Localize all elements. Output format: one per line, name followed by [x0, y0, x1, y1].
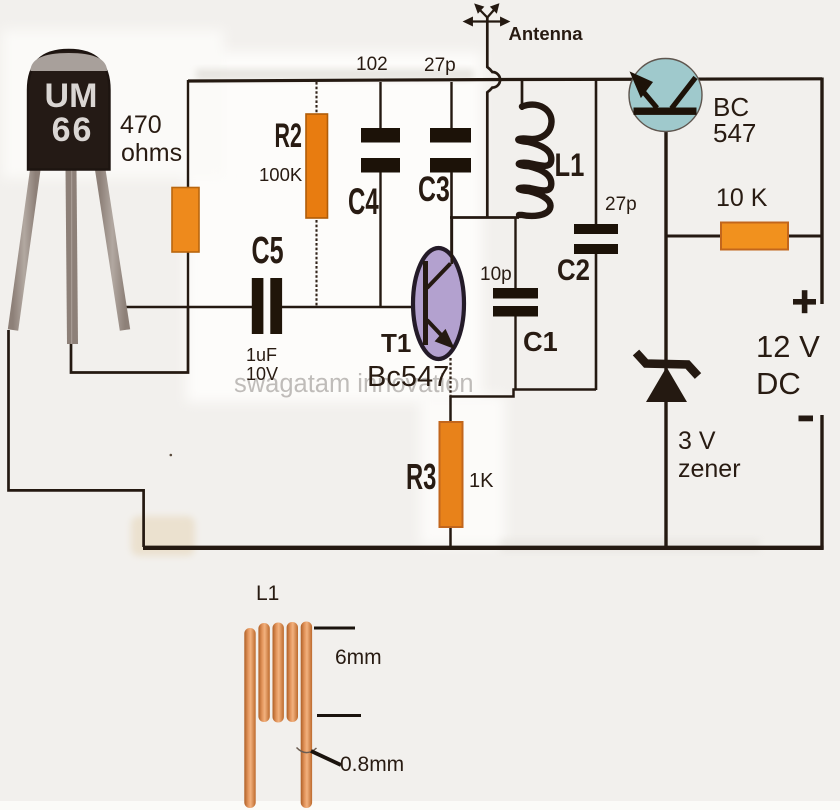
svg-text:R2: R2: [275, 117, 302, 155]
svg-text:470: 470: [120, 111, 162, 139]
svg-text:1K: 1K: [469, 470, 494, 492]
svg-text:L1: L1: [256, 582, 279, 605]
svg-text:3 V: 3 V: [678, 427, 716, 455]
svg-text:zener: zener: [678, 455, 741, 483]
svg-text:100K: 100K: [259, 164, 303, 185]
svg-text:1uF: 1uF: [246, 345, 277, 365]
svg-text:UM: UM: [45, 77, 98, 115]
svg-text:C3: C3: [418, 171, 450, 209]
svg-text:T1: T1: [381, 328, 411, 358]
svg-text:10 K: 10 K: [716, 184, 768, 212]
svg-text:10V: 10V: [246, 364, 278, 384]
svg-text:102: 102: [356, 54, 388, 75]
svg-text:6mm: 6mm: [335, 646, 382, 669]
svg-text:R3: R3: [406, 457, 436, 497]
svg-text:12 V: 12 V: [756, 329, 820, 364]
svg-text:27p: 27p: [605, 194, 637, 215]
svg-text:547: 547: [713, 118, 756, 148]
svg-text:L1: L1: [555, 148, 585, 183]
svg-text:C5: C5: [252, 229, 284, 271]
svg-text:C1: C1: [523, 326, 558, 357]
svg-text:DC: DC: [756, 366, 801, 401]
svg-text:10p: 10p: [480, 264, 512, 285]
svg-text:Antenna: Antenna: [509, 23, 584, 44]
svg-text:ohms: ohms: [121, 139, 182, 167]
svg-text:Bc547: Bc547: [367, 361, 449, 393]
svg-text:66: 66: [52, 111, 94, 149]
svg-text:C4: C4: [348, 181, 379, 223]
svg-text:0.8mm: 0.8mm: [340, 753, 404, 776]
svg-text:27p: 27p: [424, 55, 456, 76]
svg-text:C2: C2: [557, 253, 590, 286]
